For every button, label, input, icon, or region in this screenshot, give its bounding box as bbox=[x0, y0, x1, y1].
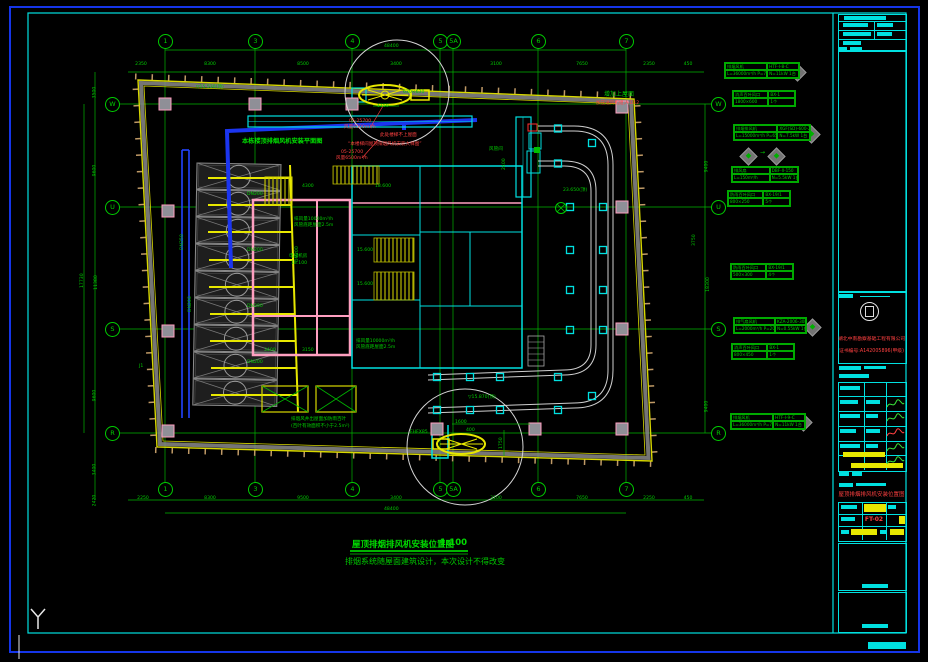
dimension-text: 9600 bbox=[92, 165, 97, 177]
dimension-text: 450 bbox=[684, 496, 693, 501]
grid-bubble: 6 bbox=[531, 34, 546, 49]
grid-bubble: 3 bbox=[248, 482, 263, 497]
plan-label: 加压送风机组;A-D12 bbox=[596, 101, 639, 106]
drain-symbol bbox=[556, 203, 567, 214]
plan-label: 3150 bbox=[302, 348, 314, 353]
plan-label: DN200 bbox=[247, 192, 263, 197]
grid-bubble: 6 bbox=[531, 482, 546, 497]
plan-label: 电梯机房 bbox=[289, 254, 307, 259]
tag-spec: L=36000m³/h P=700Pa bbox=[725, 70, 767, 77]
signature-script bbox=[886, 427, 905, 440]
plan-label: 排风量10000m³/h bbox=[356, 339, 395, 344]
dimension-text: 7650 bbox=[576, 496, 588, 501]
drawing-scale: 1:100 bbox=[440, 538, 467, 548]
equipment-tag: 排烟风机 HTF-I-9-C L=36000m³/h P=700Pa N=11k… bbox=[730, 413, 806, 430]
equipment-tag: 防雨百叶风口 BX-19/1 800×250 5个 bbox=[727, 190, 791, 207]
tag-spec: L=36000m³/h P=700Pa bbox=[731, 421, 773, 428]
plan-label: 此处楼梯不上屋面 bbox=[380, 133, 417, 138]
company-name: 湖北中南勘察基础工程有限公司 bbox=[838, 335, 905, 342]
red-leaders bbox=[362, 106, 383, 158]
equipment-tag: 排气扇风机 KZA-2006-30B L=2000m³/h P=200Pa N=… bbox=[733, 317, 807, 334]
tag-model: BX-1 bbox=[768, 91, 795, 98]
plan-label: 18.600 bbox=[375, 184, 391, 189]
plan-label: 1750 bbox=[499, 437, 504, 449]
dimension-text: 2350 bbox=[135, 62, 147, 67]
plan-label: → bbox=[760, 150, 765, 157]
grid-bubble: 3 bbox=[248, 34, 263, 49]
dimension-text: 9400 bbox=[704, 401, 709, 413]
tag-model: XGF(SD)-600-2S bbox=[777, 125, 810, 132]
equipment-tag: 排烟排风机 XGF(SD)-600-2S L=15000m³/h P=650Pa… bbox=[733, 124, 811, 141]
plan-label: DN200 bbox=[247, 360, 263, 365]
plan-label: 48400 bbox=[384, 507, 399, 512]
roof-tracks bbox=[428, 126, 613, 413]
plan-label: J1 bbox=[139, 364, 143, 369]
tag-spec: 800×450 bbox=[732, 351, 767, 358]
grid-bubble: W bbox=[105, 97, 120, 112]
dimension-text: 9600 bbox=[92, 390, 97, 402]
plan-label: 风量6500m³/h bbox=[336, 156, 368, 161]
core-rooms bbox=[352, 166, 522, 368]
plan-label: 3400 bbox=[264, 348, 276, 353]
dimension-text: 3100 bbox=[490, 62, 502, 67]
company-cert: 证书编号:A142005896(甲级) bbox=[838, 347, 905, 354]
dimension-text: 7650 bbox=[576, 62, 588, 67]
tag-model: BX-19/1 bbox=[766, 264, 793, 271]
grid-bubble: 7 bbox=[619, 34, 634, 49]
tag-model: HTF-I-8-C bbox=[767, 63, 799, 70]
plan-label: 1600 bbox=[455, 420, 467, 425]
tag-name: 排气扇风机 bbox=[734, 318, 775, 325]
plan-label: 23.650(顶) bbox=[563, 188, 587, 193]
tag-name: 排烟风机 bbox=[725, 63, 767, 70]
plan-label: 风管底距屋面2.5m bbox=[294, 223, 333, 228]
dimension-text: 450 bbox=[684, 62, 693, 67]
grid-bubble: R bbox=[105, 426, 120, 441]
dimension-text: 8300 bbox=[204, 62, 216, 67]
plan-label: 排风量10000m³/h bbox=[294, 217, 333, 222]
plan-label: 风管间 bbox=[489, 147, 503, 152]
drawing-number: FT-02 bbox=[862, 516, 886, 523]
tag-model: BX-1 bbox=[767, 344, 794, 351]
plan-label: 4300 bbox=[302, 184, 314, 189]
plan-label: 排烟风井出屋面加防雨百叶 bbox=[291, 417, 346, 422]
tag-spec: L=2000m³/h P=200Pa bbox=[734, 325, 775, 332]
tag-model: KZA-2006-30B bbox=[775, 318, 806, 325]
grid-bubble: 4 bbox=[345, 482, 360, 497]
tag-name: 消声百叶风口 bbox=[732, 344, 767, 351]
dimension-text: 2250 bbox=[137, 496, 149, 501]
tag-power: N=0.55kW 1台 bbox=[775, 325, 806, 332]
plan-label: DN200 bbox=[247, 248, 263, 253]
tag-name: 防雨百叶风口 bbox=[731, 264, 766, 271]
plan-label: 05-25700 bbox=[349, 119, 371, 124]
plan-label: 风管底距屋面2.5m bbox=[356, 345, 395, 350]
title-underline bbox=[350, 551, 468, 554]
company-stamp bbox=[860, 302, 879, 321]
plan-label: 3750 bbox=[692, 234, 697, 246]
grid-bubble: R bbox=[711, 426, 726, 441]
dimension-text: 18300 bbox=[706, 277, 711, 292]
plan-label: ▽15.870(顶) bbox=[468, 395, 496, 400]
tag-model: BX-19/1 bbox=[763, 191, 790, 198]
tag-power: 4个 bbox=[766, 271, 793, 278]
tag-power: 5个 bbox=[763, 198, 790, 205]
plan-label: 18.100 bbox=[291, 261, 307, 266]
equipment-tag: 排风扇 DBF-II-150 L=150m³/h N=5.5kW 1台 bbox=[731, 166, 799, 183]
blue-pipes bbox=[182, 150, 189, 418]
plan-label: “本楼梯间屋顶排烟风机安装大样图” bbox=[348, 142, 422, 147]
plan-label: 15.600 bbox=[357, 282, 373, 287]
dimension-text: 2350 bbox=[643, 62, 655, 67]
tag-power: N=11kW 1台 bbox=[767, 70, 799, 77]
equipment-tag: 排烟风机 HTF-I-8-C L=36000m³/h P=700Pa N=11k… bbox=[724, 62, 800, 79]
grid-bubble: 5A bbox=[446, 34, 461, 49]
plan-label: 本栋楼顶排烟风机安装平面图 bbox=[242, 138, 322, 145]
tag-power: N=5.5kW 1台 bbox=[770, 174, 798, 181]
grid-bubble: 1 bbox=[158, 482, 173, 497]
tag-name: 排烟排风机 bbox=[734, 125, 777, 132]
plan-label: DN250 bbox=[180, 234, 185, 250]
signature-script bbox=[886, 398, 905, 411]
plan-label: 05-25700 bbox=[341, 150, 363, 155]
dimension-text: 11380 bbox=[94, 275, 99, 290]
tag-spec: 1800×600 bbox=[733, 98, 768, 105]
dimension-text: 9500 bbox=[297, 496, 309, 501]
plan-label: 400 bbox=[466, 428, 475, 433]
tb-empty-box bbox=[838, 50, 907, 292]
grid-bubble: S bbox=[711, 322, 726, 337]
plan-label: 增加上屋面 bbox=[604, 92, 634, 99]
plan-label: 2400 bbox=[502, 158, 507, 170]
dimension-text: 8500 bbox=[297, 62, 309, 67]
tag-spec: L=15000m³/h P=650Pa bbox=[734, 132, 777, 139]
grid-bubble: 5A bbox=[446, 482, 461, 497]
dimension-text: 9400 bbox=[704, 161, 709, 173]
tag-spec: 500×300 bbox=[731, 271, 766, 278]
grid-bubble: U bbox=[711, 200, 726, 215]
tb-drawing-title: 屋顶排烟排风机安装位置图 bbox=[838, 490, 905, 498]
tag-power: N=11kW 1台 bbox=[773, 421, 805, 428]
plan-label: 15.600 bbox=[357, 248, 373, 253]
tag-model: HTF-I-9-C bbox=[773, 414, 805, 421]
equipment-tag: 消声百叶风口 BX-1 800×450 1个 bbox=[731, 343, 795, 360]
plan-label: DN200 bbox=[247, 304, 263, 309]
plan-label: ▽15.530(顶) bbox=[196, 85, 224, 90]
dimension-text: 3400 bbox=[92, 464, 97, 476]
drawing-title: 屋顶排烟排风机安装位置图 bbox=[352, 538, 454, 550]
tag-spec: L=150m³/h bbox=[732, 174, 770, 181]
tag-name: 消声百叶风口 bbox=[733, 91, 768, 98]
plan-label: 48400 bbox=[384, 44, 399, 49]
grid-bubble: 1 bbox=[158, 34, 173, 49]
tag-power: 1个 bbox=[767, 351, 794, 358]
plan-label: 1150 bbox=[377, 104, 389, 109]
track-anchors bbox=[434, 125, 607, 414]
tag-power: N=7.5kW 1台 bbox=[777, 132, 810, 139]
tag-model: DBF-II-150 bbox=[770, 167, 798, 174]
equipment-tag: 防雨百叶风口 BX-19/1 500×300 4个 bbox=[730, 263, 794, 280]
plan-label: 630×630 bbox=[403, 90, 424, 95]
signature-script bbox=[886, 442, 905, 455]
plan-label: DN200 bbox=[188, 296, 193, 312]
dimension-text: 3100 bbox=[490, 496, 502, 501]
cad-drawing-canvas[interactable]: 13455A67 13455A67 WUSR WUSR 235083008500… bbox=[0, 0, 928, 662]
plan-label: 风量6500m³/h bbox=[344, 125, 376, 130]
grid-bubble: 7 bbox=[619, 482, 634, 497]
plan-label: FHFX85 bbox=[410, 430, 428, 435]
tag-spec: 800×250 bbox=[728, 198, 763, 205]
dimension-text: 8300 bbox=[204, 496, 216, 501]
tag-name: 排烟风机 bbox=[731, 414, 773, 421]
plan-label: (百叶有效面积不小于2.5m²) bbox=[291, 424, 350, 429]
tag-name: 排风扇 bbox=[732, 167, 770, 174]
dimension-text: 2250 bbox=[643, 496, 655, 501]
grid-bubble: 4 bbox=[345, 34, 360, 49]
dimension-text: 3500 bbox=[92, 87, 97, 99]
tag-name: 防雨百叶风口 bbox=[728, 191, 763, 198]
grid-bubble: U bbox=[105, 200, 120, 215]
grid-bubble: S bbox=[105, 322, 120, 337]
equipment-tag: 消声百叶风口 BX-1 1800×600 1个 bbox=[732, 90, 796, 107]
dimension-text: 3400 bbox=[390, 62, 402, 67]
drawing-note: 排烟系统随屋面建筑设计，本次设计不得改变 bbox=[345, 556, 505, 567]
grid-bubble: W bbox=[711, 97, 726, 112]
plan-label: 17730 bbox=[80, 273, 85, 288]
dimension-text: 2420 bbox=[92, 495, 97, 507]
tag-power: 1个 bbox=[768, 98, 795, 105]
signature-script bbox=[886, 412, 905, 425]
dimension-text: 3400 bbox=[390, 496, 402, 501]
signature-script bbox=[886, 455, 905, 468]
